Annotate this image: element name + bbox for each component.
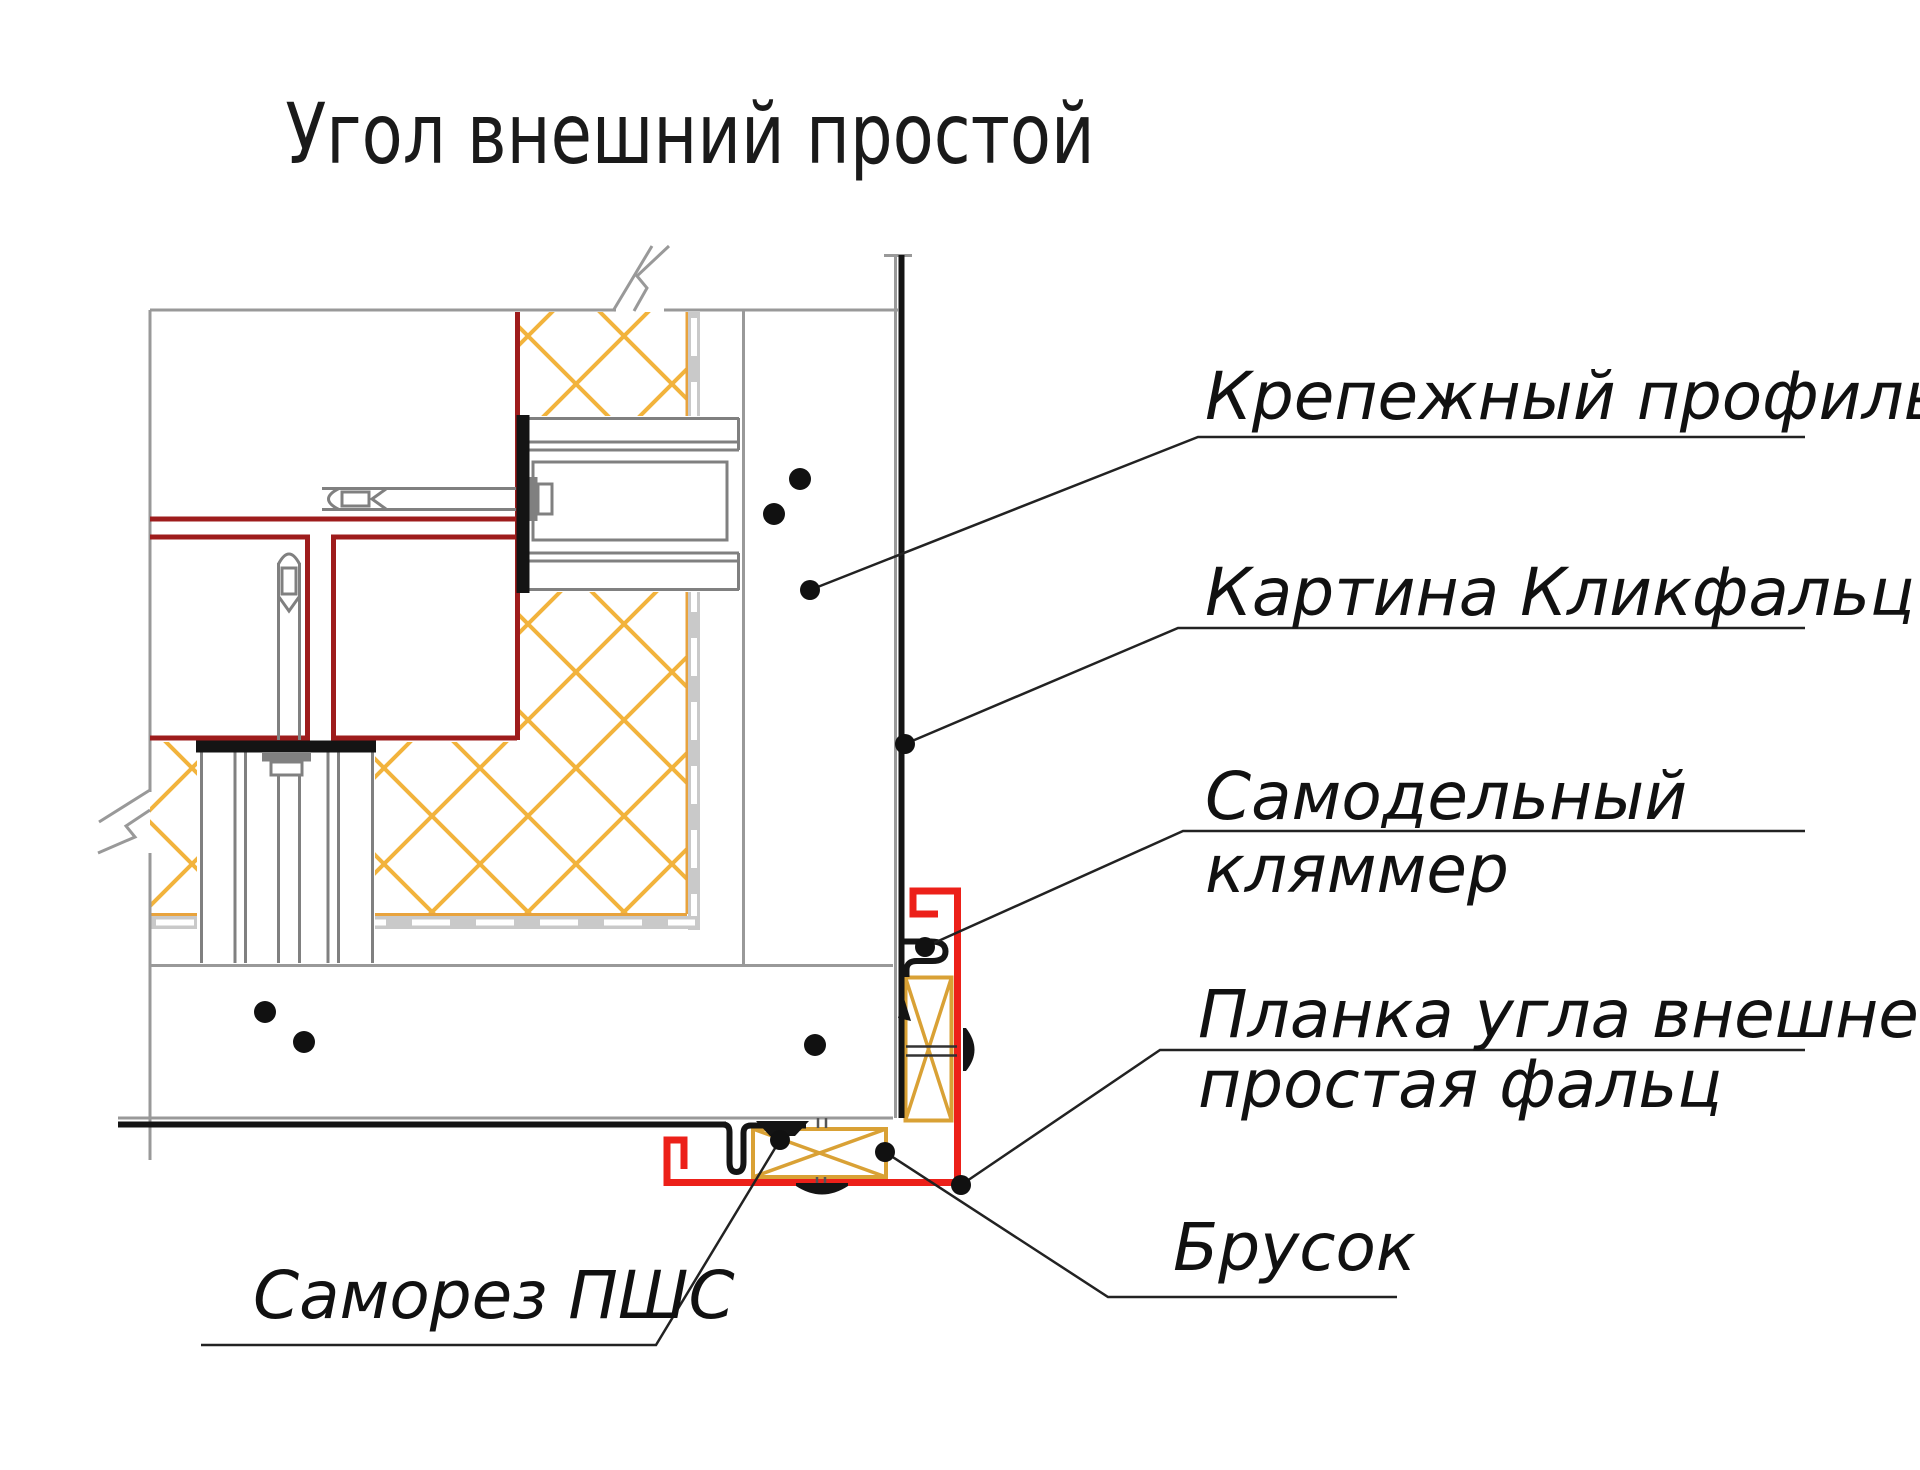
screw-head-bottom — [796, 1183, 848, 1195]
label-homemade-clamp-line1: Самодельный — [1205, 764, 1687, 830]
bracket-bottom-washer — [262, 753, 311, 762]
wall-lines — [98, 246, 912, 1160]
fastener-dot — [804, 1034, 826, 1056]
anchor-bolt-horizontal — [322, 489, 516, 510]
label-corner-strip-line2: простая фальц — [1198, 1052, 1722, 1118]
label-corner-strip-line1: Планка угла внешнего — [1198, 982, 1920, 1048]
leader-dot-homemade-clamp — [915, 937, 935, 957]
anchor-vertical-tip — [279, 554, 300, 564]
bracket-right-sleeve — [538, 484, 552, 514]
bracket-right-mount-plate — [517, 415, 530, 593]
fastener-dot — [763, 503, 785, 525]
leader-dot-screw — [770, 1130, 790, 1150]
anchor-vertical-sleeve — [282, 568, 296, 594]
bracket-right-washer — [530, 477, 538, 521]
label-wood-block: Брусок — [1173, 1215, 1416, 1281]
fastener-dot — [293, 1031, 315, 1053]
anchor-horizontal-chevron — [372, 489, 386, 509]
break-mark-left — [98, 790, 150, 853]
label-screw: Саморез ПШС — [253, 1263, 735, 1329]
label-homemade-clamp-line2: кляммер — [1205, 837, 1509, 903]
wood-block-vertical — [906, 978, 952, 1121]
screw-head-right — [963, 1028, 975, 1071]
break-mark-top — [613, 246, 669, 311]
structure-red-lines — [150, 312, 518, 740]
leader-dot-fastening-profile — [800, 580, 820, 600]
drawing-title: Угол внешний простой — [138, 92, 1242, 176]
leader-dot-corner-strip — [951, 1175, 971, 1195]
bracket-bottom-sleeve — [271, 762, 302, 775]
label-clickfalz-panel: Картина Кликфальц — [1205, 560, 1915, 626]
fastening-bracket-right — [517, 415, 741, 593]
corner-detail-drawing — [0, 0, 1920, 1470]
bracket-bottom-mount-plate — [196, 741, 376, 753]
leader-clickfalz-panel — [905, 628, 1805, 744]
leader-dot-clickfalz-panel — [895, 734, 915, 754]
anchor-horizontal-sleeve — [342, 492, 369, 506]
anchor-bolt-vertical — [279, 554, 300, 740]
fastening-bracket-bottom — [196, 741, 376, 965]
leader-dot-wood-block — [875, 1142, 895, 1162]
fastener-dot — [789, 468, 811, 490]
diagram-canvas: Угол внешний простой Крепежный профиль К… — [0, 0, 1920, 1470]
anchor-vertical-chevron — [279, 597, 299, 611]
label-fastening-profile: Крепежный профиль — [1205, 364, 1920, 430]
anchor-horizontal-tip — [329, 489, 340, 510]
fastener-dot — [254, 1001, 276, 1023]
